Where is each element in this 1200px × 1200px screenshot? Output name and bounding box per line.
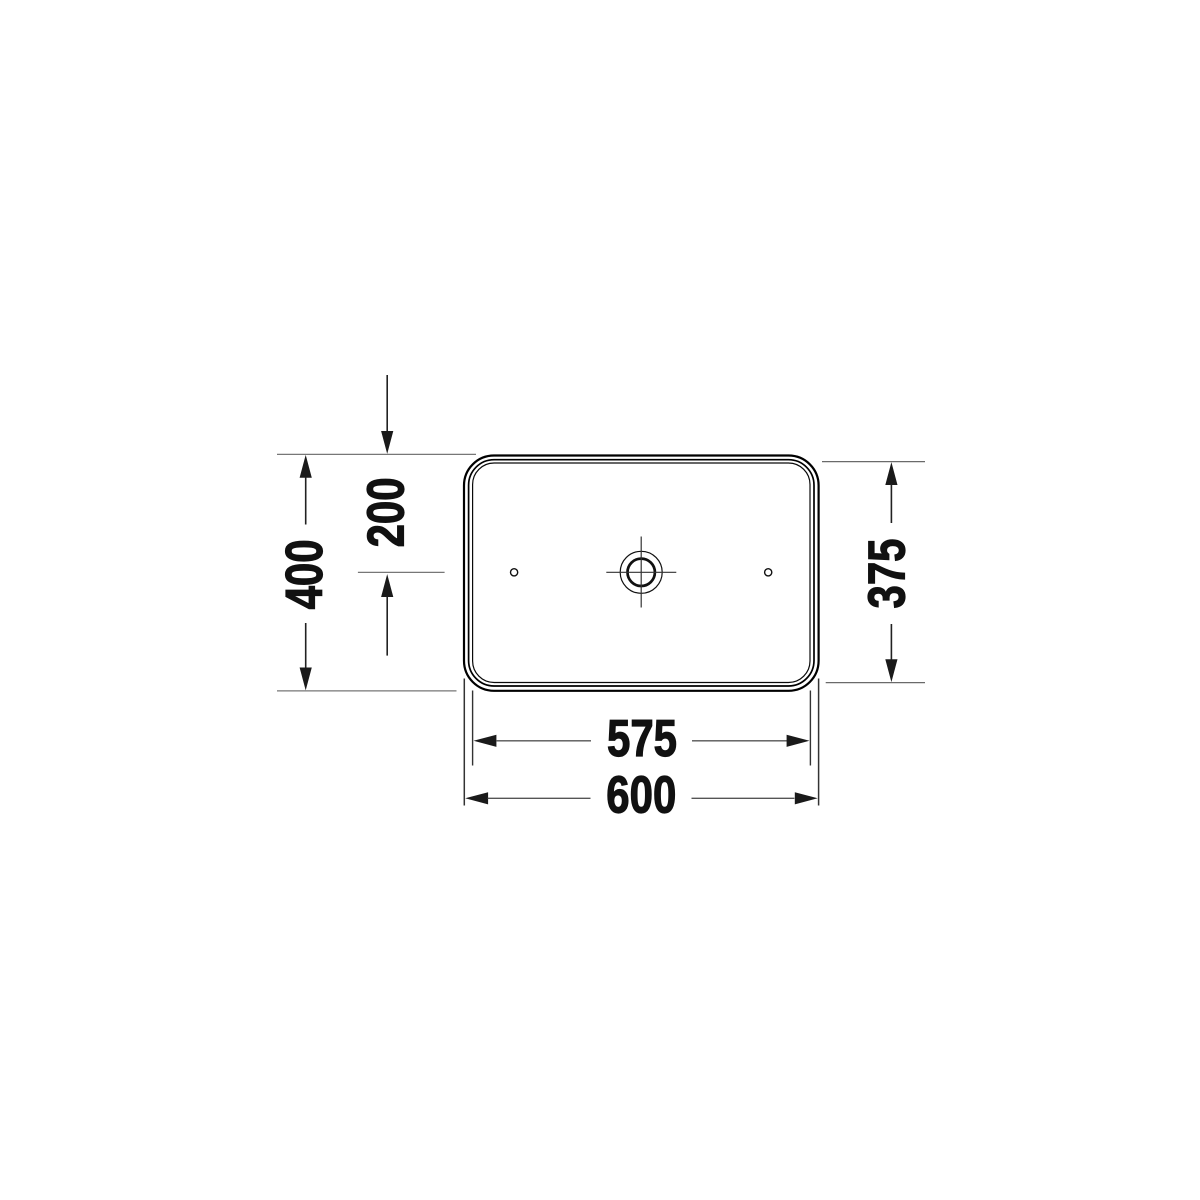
svg-text:200: 200	[358, 477, 416, 547]
svg-text:575: 575	[607, 710, 677, 768]
svg-text:375: 375	[858, 539, 916, 609]
svg-text:400: 400	[276, 539, 334, 609]
svg-text:600: 600	[606, 766, 676, 824]
